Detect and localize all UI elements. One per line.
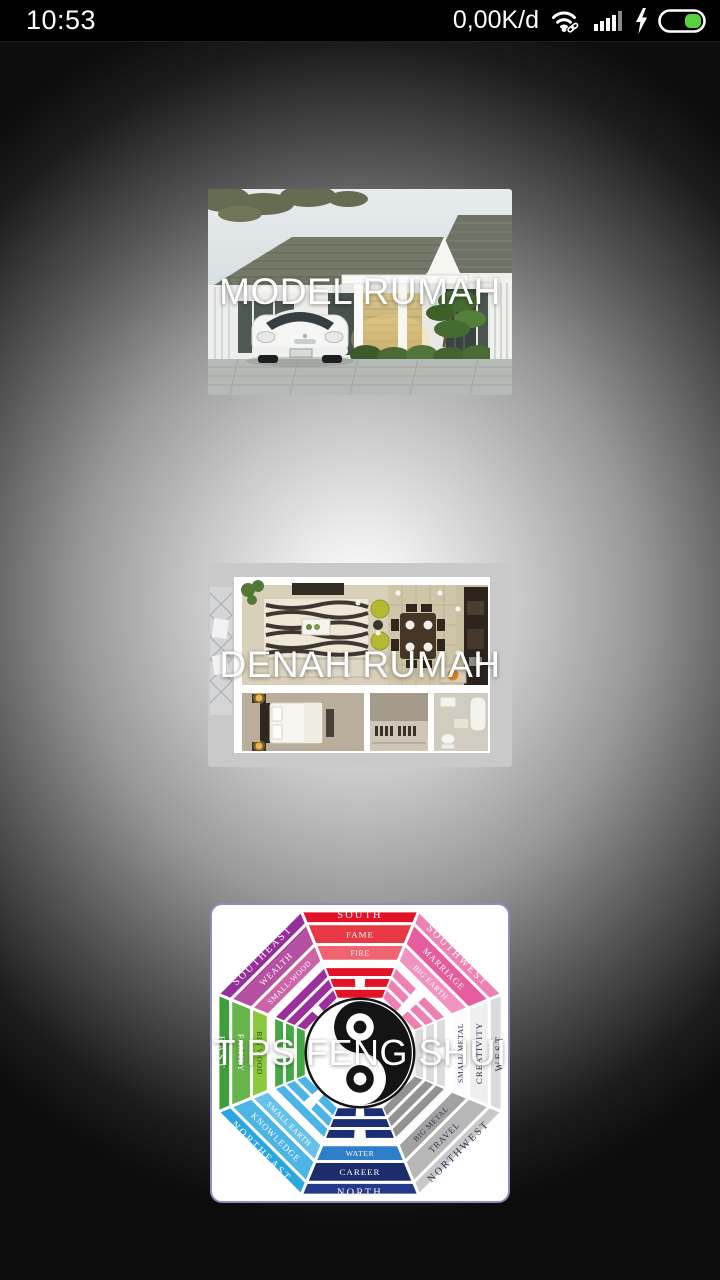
3d-floor-plan-image (208, 563, 512, 767)
menu-list: MODEL RUMAH (0, 42, 720, 1280)
svg-text:FAMILY: FAMILY (236, 1034, 246, 1072)
menu-card-model-rumah[interactable]: MODEL RUMAH (208, 189, 512, 395)
charging-bolt-icon (635, 8, 648, 34)
data-rate-label: 0,00K/d (453, 6, 539, 35)
svg-text:CAREER: CAREER (340, 1167, 381, 1177)
svg-text:SMALL METAL: SMALL METAL (456, 1023, 465, 1083)
app-screen: 10:53 0,00K/d (0, 0, 720, 1280)
svg-text:WEST: WEST (494, 1035, 505, 1072)
svg-text:WATER: WATER (346, 1149, 375, 1158)
menu-card-tips-feng-shui[interactable]: SOUTHFAMEFIRESOUTHWESTMARRIAGEBIG EARTHW… (210, 903, 510, 1203)
svg-text:NORTH: NORTH (337, 1187, 383, 1198)
svg-text:SOUTH: SOUTH (337, 910, 382, 921)
svg-text:FAME: FAME (346, 929, 374, 939)
yin-yang-symbol (306, 999, 415, 1108)
feng-shui-bagua-diagram: SOUTHFAMEFIRESOUTHWESTMARRIAGEBIG EARTHW… (212, 905, 508, 1201)
wifi-icon (549, 7, 583, 35)
car-illustration (252, 309, 348, 363)
svg-text:FIRE: FIRE (350, 949, 369, 958)
svg-text:EAST: EAST (215, 1036, 226, 1071)
battery-level (685, 14, 701, 28)
battery-icon (658, 9, 706, 33)
status-bar: 10:53 0,00K/d (0, 0, 720, 42)
minimalist-house-photo (208, 189, 512, 395)
clock-label: 10:53 (26, 5, 96, 36)
status-icons: 0,00K/d (453, 6, 706, 35)
svg-text:BIG WOOD: BIG WOOD (255, 1031, 264, 1075)
signal-strength-icon (593, 9, 625, 33)
link-icon (567, 22, 578, 32)
menu-card-denah-rumah[interactable]: DENAH RUMAH (208, 563, 512, 767)
svg-text:CREATIVITY: CREATIVITY (474, 1022, 484, 1084)
